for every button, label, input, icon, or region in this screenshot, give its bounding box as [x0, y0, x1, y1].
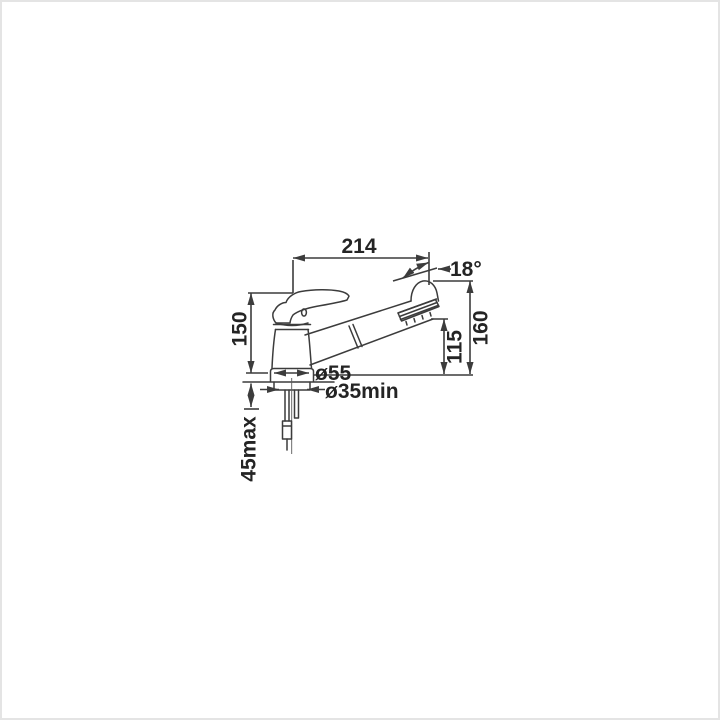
- dim-spout-reach-label: 214: [341, 235, 376, 258]
- dimension-spout-reach: 214: [293, 235, 429, 293]
- lever-handle: [273, 290, 349, 326]
- dimension-spout-angle: 18°: [393, 258, 482, 281]
- dimension-mounting-hole: ø35min: [260, 380, 399, 403]
- dimension-deck-thickness: 45max: [238, 384, 261, 482]
- hose-fitting: [283, 421, 292, 439]
- dim-deck-thickness-label: 45max: [238, 416, 261, 482]
- dim-spout-angle-label: 18°: [450, 258, 482, 281]
- dim-spout-height-label: 160: [470, 310, 493, 345]
- dim-mounting-hole-label: ø35min: [325, 380, 399, 403]
- supply-hoses: [274, 378, 310, 454]
- faucet-body: [272, 325, 312, 369]
- technical-drawing-canvas: 214 18° 150 160 115 ø55 ø35min: [2, 2, 720, 720]
- dimension-fitting-height: 150: [229, 293, 294, 373]
- dimension-outlet-height: 115: [431, 319, 467, 374]
- product-dimension-drawing: 214 18° 150 160 115 ø55 ø35min: [0, 0, 720, 720]
- dim-outlet-height-label: 115: [444, 330, 467, 364]
- dim-fitting-height-label: 150: [229, 311, 252, 346]
